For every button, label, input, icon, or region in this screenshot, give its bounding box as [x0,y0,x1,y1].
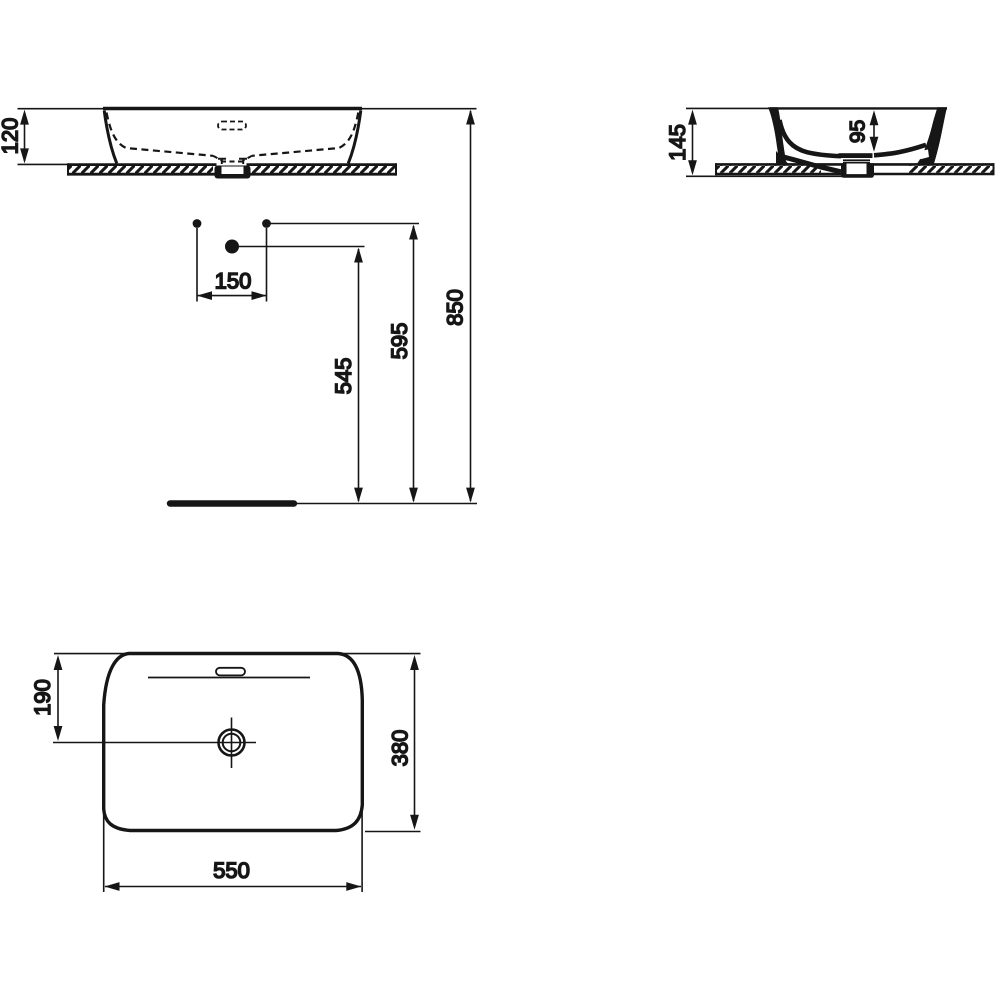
svg-text:190: 190 [30,679,55,716]
svg-text:150: 150 [215,269,252,294]
svg-text:380: 380 [388,730,413,767]
svg-text:550: 550 [213,858,250,883]
svg-text:850: 850 [443,289,468,326]
svg-text:95: 95 [847,120,870,143]
svg-text:595: 595 [387,323,412,360]
svg-text:145: 145 [665,124,690,161]
svg-text:545: 545 [331,358,356,395]
svg-text:120: 120 [0,118,23,155]
